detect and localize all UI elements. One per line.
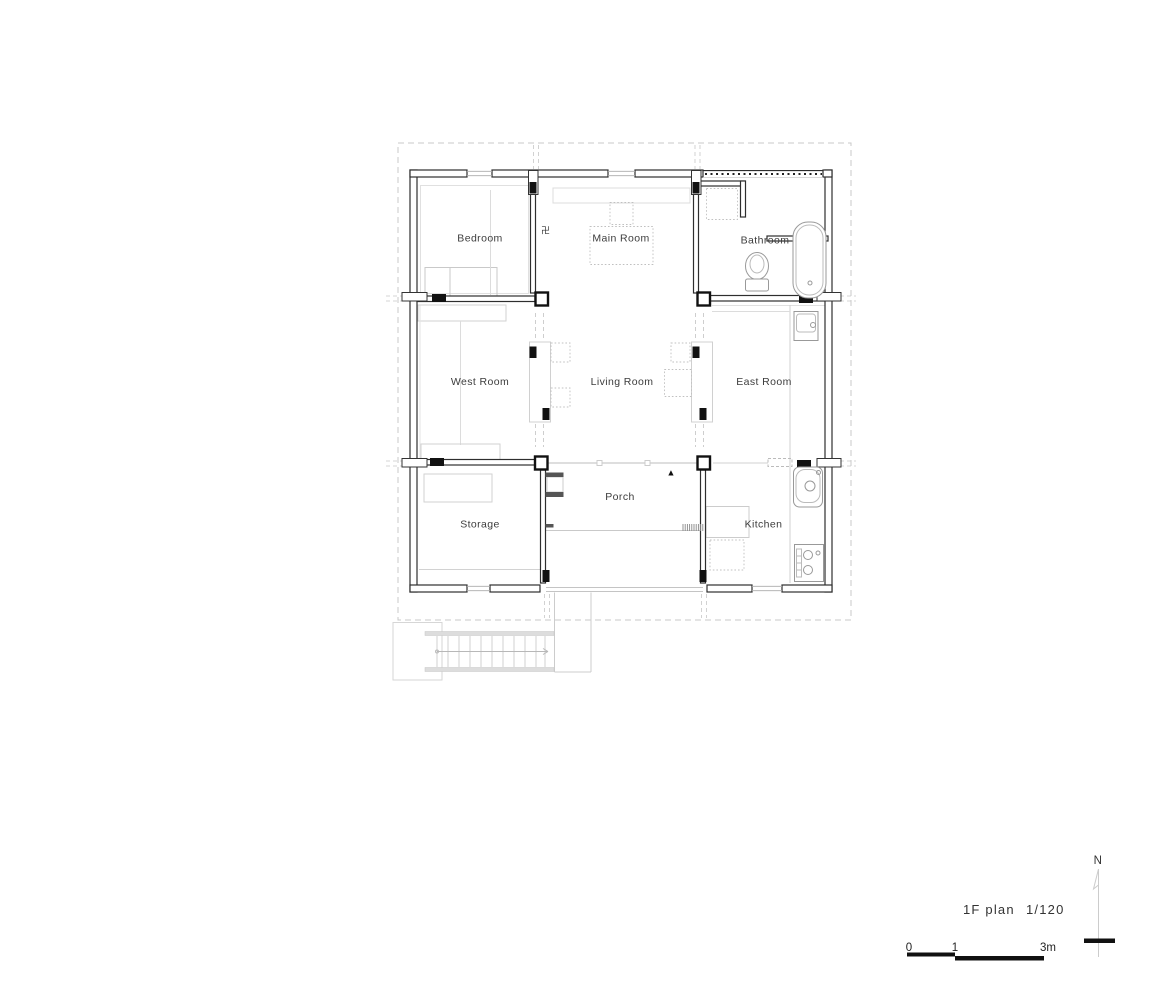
toilet xyxy=(746,253,769,292)
floor-plan-drawing: Bedroom Main Room Bathroom West Room Liv… xyxy=(0,0,1161,1000)
scale-tick-1: 1 xyxy=(952,942,958,954)
room-label-bedroom: Bedroom xyxy=(457,233,502,245)
altar-symbol-icon: 卍 xyxy=(541,226,550,236)
bathroom-top-vent xyxy=(703,171,823,178)
scale-tick-3m: 3m xyxy=(1040,942,1056,954)
scale-bar-segment-2 xyxy=(955,956,1044,961)
scale-tick-0: 0 xyxy=(906,942,912,954)
north-arrow: N xyxy=(1084,855,1115,957)
scale-bar-segment-1 xyxy=(907,953,955,957)
floor-plan-sheet: Bedroom Main Room Bathroom West Room Liv… xyxy=(0,0,1161,1000)
room-label-bathroom: Bathroom xyxy=(741,235,790,247)
room-label-living-room: Living Room xyxy=(591,376,654,388)
room-label-porch: Porch xyxy=(605,491,634,503)
room-label-east-room: East Room xyxy=(736,376,792,388)
room-labels: Bedroom Main Room Bathroom West Room Liv… xyxy=(451,226,792,531)
room-label-west-room: West Room xyxy=(451,376,509,388)
room-label-main-room: Main Room xyxy=(592,233,649,245)
room-label-kitchen: Kitchen xyxy=(745,519,783,531)
title-block: 1F plan 1/120 xyxy=(963,902,1065,917)
plan-title: 1F plan xyxy=(963,902,1015,917)
washbasin xyxy=(794,312,818,341)
kitchen-sink xyxy=(794,467,823,507)
north-arrow-bar xyxy=(1084,939,1115,944)
bathtub xyxy=(793,222,826,298)
north-label: N xyxy=(1094,855,1103,867)
room-label-storage: Storage xyxy=(460,519,500,531)
kitchen-stove xyxy=(795,545,824,582)
plan-scale-ratio: 1/120 xyxy=(1026,902,1065,917)
scale-bar: 0 1 3m xyxy=(906,942,1056,961)
entrance-marker-icon: ▲ xyxy=(667,468,676,478)
